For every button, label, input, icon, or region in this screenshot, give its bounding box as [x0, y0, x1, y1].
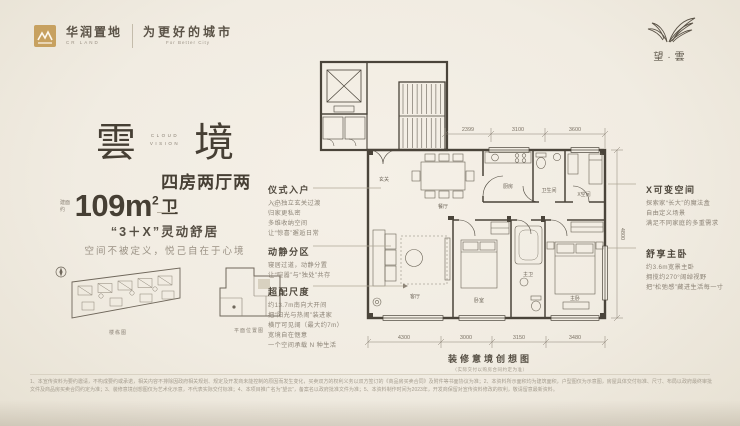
subtitle: 空间不被定义，悦己自在于心境	[48, 243, 282, 257]
title-english: CLOUD VISION	[150, 133, 180, 146]
north-compass-icon	[56, 267, 66, 277]
brand-slogan: 为更好的城市	[143, 26, 233, 39]
plan-caption: 装修意境创想图 （实际交付以购房合同约定为准）	[400, 352, 580, 373]
annotation-line: 横厅可见阔（最大约7m）	[268, 321, 364, 331]
area-prefix: 建面约	[60, 200, 72, 214]
tagline: “3＋X”灵动舒居	[58, 221, 272, 240]
annotation-heading: 仪式入户	[268, 183, 364, 196]
room-label-bath1: 卫生间	[541, 187, 556, 194]
dim-top-1: 2399	[462, 127, 474, 133]
dim-right: 4800	[619, 228, 625, 240]
room-label-xroom: X空间	[577, 191, 590, 198]
annotation-line: 探索家“长大”的魔法盒	[646, 199, 740, 209]
annotation-line: 把“松弛感”藏进生活每一寸	[646, 283, 740, 293]
annotation-x-space: X可变空间 探索家“长大”的魔法盒 自由定义场景 满足不同家庭的多重需求	[646, 183, 740, 229]
cr-land-logo-icon	[34, 25, 56, 47]
mini-diagrams: 楼栋图 平面位置图	[52, 262, 292, 336]
bottom-vignette	[0, 400, 740, 426]
annotation-heading: 舒享主卧	[646, 247, 740, 260]
leader-arrow-icon	[403, 284, 408, 289]
page-title: 雲 CLOUD VISION 境	[58, 110, 272, 168]
brand-divider	[132, 24, 133, 48]
dim-bottom-1: 4300	[398, 335, 410, 341]
hero-divider	[157, 212, 175, 213]
annotation-heading: X可变空间	[646, 183, 740, 196]
title-char-1: 雲	[96, 110, 136, 168]
project-logo: 望·雲	[636, 16, 706, 63]
annotation-master-suite: 舒享主卧 约3.6m宽景主卧 拥揽约270°阔绰视野 把“松弛感”藏进生活每一寸	[646, 247, 740, 293]
area-value: 109m2	[75, 192, 158, 220]
annotation-line: 让“喧嚣”与“独处”共存	[268, 271, 364, 281]
room-label-kitchen: 厨房	[503, 183, 513, 190]
brand-bar: 华润置地 CR LAND 为更好的城市 For Better City	[34, 24, 233, 48]
title-en-line1: CLOUD	[151, 133, 179, 138]
annotation-line: 自由定义场景	[646, 209, 740, 219]
wings-icon	[645, 16, 697, 46]
annotation-line: 一个空间承载 N 种生活	[268, 341, 364, 351]
room-label-bath2: 主卫	[523, 271, 533, 278]
annotation-line: 让“惊喜”邂逅日常	[268, 229, 364, 239]
project-name: 望·雲	[653, 48, 688, 63]
room-label-bedroom: 卧室	[474, 297, 484, 304]
area-layout: 四房两厅两卫	[161, 168, 266, 218]
annotation-heading: 超配尺度	[268, 285, 364, 298]
annotation-scale: 超配尺度 约13.7m南向大开间 把“阳光与热闹”装进家 横厅可见阔（最大约7m…	[268, 285, 364, 351]
room-label-foyer: 玄关	[379, 176, 389, 183]
dim-top-2: 3100	[512, 127, 524, 133]
site-plan-caption: 楼栋图	[109, 329, 127, 336]
title-char-2: 境	[194, 110, 234, 168]
dim-top-3: 3600	[569, 127, 581, 133]
annotation-line: 约3.6m宽景主卧	[646, 263, 740, 273]
annotation-line: 把“阳光与热闹”装进家	[268, 311, 364, 321]
brand-name: 华润置地	[66, 26, 122, 39]
plan-caption-title: 装修意境创想图	[400, 352, 580, 365]
footer-rule	[30, 374, 710, 375]
plan-caption-note: （实际交付以购房合同约定为准）	[400, 367, 580, 373]
annotation-line: 拥揽约270°阔绰视野	[646, 273, 740, 283]
annotation-line: 满足不同家庭的多重需求	[646, 219, 740, 229]
annotation-zoning: 动静分区 寝居过道，动静分置 让“喧嚣”与“独处”共存	[268, 245, 364, 281]
disclaimer-text: 1、本宣传资料为要约邀请，不构成要约或承诺，相关内容不排除因政府相关规划、规定及…	[30, 379, 712, 395]
annotation-line: 归家更私密	[268, 209, 364, 219]
annotation-line: 入户独立玄关过渡	[268, 199, 364, 209]
site-plan-drawing	[52, 262, 184, 326]
site-plan-diagram: 楼栋图	[52, 262, 184, 336]
room-label-living: 客厅	[410, 293, 420, 300]
brand-slogan-en: For Better City	[143, 41, 233, 46]
annotation-line: 寝居过道，动静分置	[268, 261, 364, 271]
title-en-line2: VISION	[150, 141, 180, 146]
annotation-heading: 动静分区	[268, 245, 364, 258]
dim-bottom-3: 3150	[513, 335, 525, 341]
room-label-dining: 餐厅	[438, 203, 448, 210]
brand-name-en: CR LAND	[66, 41, 122, 46]
poster-page: 华润置地 CR LAND 为更好的城市 For Better City 望·雲 …	[0, 0, 740, 426]
key-plan-caption: 平面位置图	[234, 327, 264, 334]
annotation-line: 约13.7m南向大开间	[268, 301, 364, 311]
dim-bottom-2: 3000	[460, 335, 472, 341]
room-label-master: 主卧	[570, 295, 580, 302]
annotation-line: 多维收纳空间	[268, 219, 364, 229]
dim-bottom-4: 3480	[569, 335, 581, 341]
annotation-line: 宽境自在惬意	[268, 331, 364, 341]
annotation-entry: 仪式入户 入户独立玄关过渡 归家更私密 多维收纳空间 让“惊喜”邂逅日常	[268, 183, 364, 239]
